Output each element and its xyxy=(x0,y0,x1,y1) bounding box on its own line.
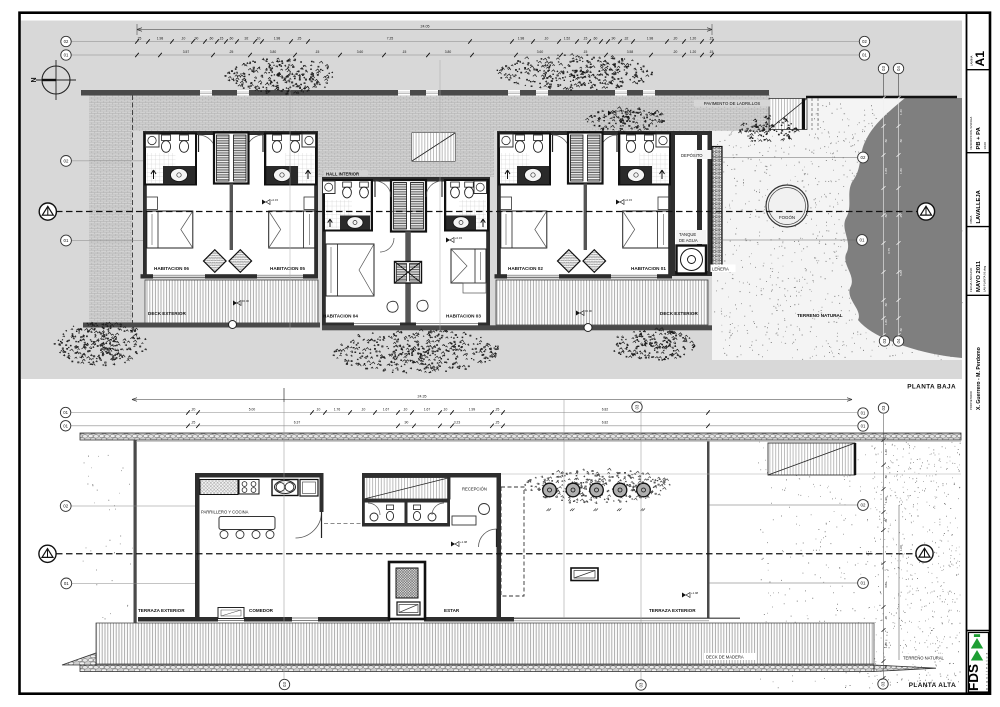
svg-text:.25: .25 xyxy=(191,421,196,425)
svg-text:1.76: 1.76 xyxy=(334,407,341,411)
svg-text:6.37: 6.37 xyxy=(294,421,301,425)
svg-text:1.80: 1.80 xyxy=(899,168,903,174)
svg-text:01: 01 xyxy=(862,53,867,58)
svg-text:FECHA / ARCHIVO: FECHA / ARCHIVO xyxy=(969,267,973,292)
svg-text:3.60: 3.60 xyxy=(357,50,364,54)
svg-text:.92: .92 xyxy=(244,36,249,40)
svg-text:TANQUE: TANQUE xyxy=(679,232,696,237)
svg-text:RECEPCIÓN: RECEPCIÓN xyxy=(462,487,487,492)
svg-text:DESCRIPCION / ESCALA: DESCRIPCION / ESCALA xyxy=(969,117,973,150)
svg-text:02: 02 xyxy=(64,158,69,163)
svg-text:24.05: 24.05 xyxy=(421,25,430,29)
svg-text:.60: .60 xyxy=(229,36,234,40)
svg-text:.50: .50 xyxy=(884,139,888,144)
svg-text:.25: .25 xyxy=(137,36,142,40)
svg-text:1.67: 1.67 xyxy=(383,407,390,411)
svg-text:1.99: 1.99 xyxy=(469,407,476,411)
svg-text:HABITACION 01: HABITACION 01 xyxy=(631,266,666,271)
svg-text:04: 04 xyxy=(896,338,901,343)
svg-text:PROPIETARIO: PROPIETARIO xyxy=(969,390,973,410)
svg-text:.10: .10 xyxy=(403,407,408,411)
svg-text:DECK EXTERIOR: DECK EXTERIOR xyxy=(660,311,698,316)
svg-text:02: 02 xyxy=(64,39,69,44)
svg-text:03: 03 xyxy=(635,404,640,409)
svg-text:.90: .90 xyxy=(611,36,616,40)
svg-text:.15: .15 xyxy=(583,36,588,40)
svg-text:COMEDOR: COMEDOR xyxy=(249,608,274,613)
svg-text:1.40: 1.40 xyxy=(884,109,888,115)
svg-text:1.98: 1.98 xyxy=(274,36,281,40)
svg-text:1.98: 1.98 xyxy=(157,36,164,40)
svg-text:FOGÓN: FOGÓN xyxy=(779,215,795,220)
svg-text:TERREÑO NATURAL: TERREÑO NATURAL xyxy=(903,656,945,661)
svg-text:±0.00: ±0.00 xyxy=(585,309,592,313)
svg-text:3.58: 3.58 xyxy=(627,50,634,54)
svg-text:PARRILLERO Y COCINA: PARRILLERO Y COCINA xyxy=(201,510,249,515)
svg-text:3.80: 3.80 xyxy=(270,50,277,54)
svg-text:3.57: 3.57 xyxy=(183,50,190,54)
svg-text:DECK EXTERIOR: DECK EXTERIOR xyxy=(148,311,186,316)
svg-text:03: 03 xyxy=(882,338,887,343)
svg-text:HABITACION 06: HABITACION 06 xyxy=(154,266,189,271)
svg-text:.60: .60 xyxy=(209,36,214,40)
svg-text:HALL INTERIOR: HALL INTERIOR xyxy=(326,172,360,177)
svg-text:.20: .20 xyxy=(191,407,196,411)
svg-text:6.82: 6.82 xyxy=(602,421,609,425)
svg-text:02: 02 xyxy=(862,39,867,44)
svg-text:.20: .20 xyxy=(884,616,888,621)
svg-text:1.80: 1.80 xyxy=(884,642,888,648)
svg-text:±0.00: ±0.00 xyxy=(242,299,249,303)
svg-text:01: 01 xyxy=(861,581,866,586)
svg-text:01: 01 xyxy=(64,238,69,243)
svg-text:OBRA: OBRA xyxy=(969,215,973,223)
svg-text:.60: .60 xyxy=(593,36,598,40)
svg-text:.32: .32 xyxy=(624,36,629,40)
svg-text:PLANTA ALTA: PLANTA ALTA xyxy=(909,682,956,689)
svg-text:TERRENO NATURAL: TERRENO NATURAL xyxy=(797,313,843,318)
svg-text:.15: .15 xyxy=(709,50,714,54)
svg-text:+1.98: +1.98 xyxy=(460,540,468,544)
svg-text:02: 02 xyxy=(63,504,68,509)
svg-text:+0.15: +0.15 xyxy=(625,198,633,202)
svg-text:HABITACION 05: HABITACION 05 xyxy=(270,266,305,271)
svg-text:TERRAZA EXTERIOR: TERRAZA EXTERIOR xyxy=(649,608,696,613)
svg-text:.90: .90 xyxy=(404,421,409,425)
svg-text:01: 01 xyxy=(861,411,866,416)
svg-text:5.00: 5.00 xyxy=(249,407,256,411)
svg-text:.10: .10 xyxy=(443,407,448,411)
svg-text:.15: .15 xyxy=(315,50,320,54)
svg-text:6.82: 6.82 xyxy=(602,407,609,411)
svg-text:.20: .20 xyxy=(673,50,678,54)
svg-text:HABITACION 03: HABITACION 03 xyxy=(446,314,481,319)
svg-text:1/100: 1/100 xyxy=(983,142,987,150)
svg-text:+1.98: +1.98 xyxy=(691,591,699,595)
svg-text:HABITACION 04: HABITACION 04 xyxy=(323,314,358,319)
svg-text:.50: .50 xyxy=(899,328,903,333)
svg-text:.15: .15 xyxy=(583,50,588,54)
svg-text:3.80: 3.80 xyxy=(884,582,888,588)
svg-text:.25: .25 xyxy=(495,407,500,411)
svg-text:03: 03 xyxy=(881,405,886,410)
svg-text:LAVALLEJA: LAVALLEJA xyxy=(976,189,982,223)
svg-text:DECK DE MADERA: DECK DE MADERA xyxy=(706,655,744,660)
svg-text:.20: .20 xyxy=(673,36,678,40)
svg-text:PB + PA: PB + PA xyxy=(976,126,982,149)
svg-text:01: 01 xyxy=(64,581,69,586)
svg-text:+0.15: +0.15 xyxy=(271,198,279,202)
svg-text:02: 02 xyxy=(861,503,866,508)
svg-text:3.60: 3.60 xyxy=(537,50,544,54)
svg-text:24.35: 24.35 xyxy=(418,394,427,398)
svg-text:1.80: 1.80 xyxy=(884,319,888,325)
svg-text:3.75: 3.75 xyxy=(887,248,891,254)
svg-text:DE AGUA: DE AGUA xyxy=(679,238,698,243)
svg-text:3.23: 3.23 xyxy=(454,421,461,425)
svg-text:FDS: FDS xyxy=(966,664,981,691)
svg-text:01: 01 xyxy=(63,423,68,428)
svg-text:.10: .10 xyxy=(361,407,366,411)
svg-text:03: 03 xyxy=(639,682,644,687)
svg-text:.15: .15 xyxy=(402,50,407,54)
svg-text:.25: .25 xyxy=(495,421,500,425)
svg-text:-: - xyxy=(983,229,987,230)
svg-text:.50: .50 xyxy=(899,139,903,144)
svg-text:04: 04 xyxy=(896,66,901,71)
svg-text:arquitectos: arquitectos xyxy=(985,651,989,690)
svg-text:PLANTA BAJA: PLANTA BAJA xyxy=(907,384,956,391)
svg-text:.25: .25 xyxy=(229,50,234,54)
svg-text:1.98: 1.98 xyxy=(518,36,525,40)
svg-text:1.20: 1.20 xyxy=(690,50,697,54)
svg-text:.35: .35 xyxy=(884,519,888,524)
svg-text:1.40: 1.40 xyxy=(884,449,888,455)
svg-text:01: 01 xyxy=(860,238,865,243)
svg-text:.50: .50 xyxy=(884,303,888,308)
svg-text:HABITACION 02: HABITACION 02 xyxy=(508,266,543,271)
svg-text:.25: .25 xyxy=(297,36,302,40)
svg-text:.10: .10 xyxy=(316,407,321,411)
svg-text:3.80: 3.80 xyxy=(445,50,452,54)
svg-text:A1: A1 xyxy=(973,51,987,67)
svg-text:1.67: 1.67 xyxy=(424,407,431,411)
svg-text:.15: .15 xyxy=(709,36,714,40)
svg-text:1.90: 1.90 xyxy=(884,497,888,503)
svg-text:PAVIMENTO DE LADRILLOS: PAVIMENTO DE LADRILLOS xyxy=(704,101,761,106)
svg-text:ESTAR: ESTAR xyxy=(444,608,460,613)
svg-text:.15: .15 xyxy=(219,36,224,40)
svg-text:+0.15: +0.15 xyxy=(455,236,463,240)
svg-text:01: 01 xyxy=(64,53,69,58)
svg-text:.50: .50 xyxy=(884,475,888,480)
svg-text:N: N xyxy=(31,77,38,82)
svg-text:02: 02 xyxy=(861,155,866,160)
svg-text:03: 03 xyxy=(881,66,886,71)
svg-text:1.40: 1.40 xyxy=(899,109,903,115)
svg-text:.50: .50 xyxy=(884,665,888,670)
svg-text:LAV-PLANTA 06.dwg: LAV-PLANTA 06.dwg xyxy=(983,265,987,292)
svg-text:.10: .10 xyxy=(181,36,186,40)
svg-text:TERRAZA EXTERIOR: TERRAZA EXTERIOR xyxy=(138,608,185,613)
svg-text:1.00: 1.00 xyxy=(899,545,903,551)
svg-text:.10: .10 xyxy=(544,36,549,40)
svg-text:03: 03 xyxy=(282,682,287,687)
svg-text:01: 01 xyxy=(63,410,68,415)
svg-text:1.52: 1.52 xyxy=(564,36,571,40)
svg-text:LEÑERA: LEÑERA xyxy=(712,267,729,272)
svg-text:DEPÓSITO: DEPÓSITO xyxy=(681,153,703,158)
svg-text:01: 01 xyxy=(861,424,866,429)
svg-text:1.98: 1.98 xyxy=(647,36,654,40)
svg-text:MAYO 2011: MAYO 2011 xyxy=(976,260,982,292)
svg-text:1.88: 1.88 xyxy=(884,168,888,174)
svg-text:X. Guerrero - M. Perdomo: X. Guerrero - M. Perdomo xyxy=(976,347,982,410)
svg-text:7.25: 7.25 xyxy=(387,36,394,40)
svg-text:1.20: 1.20 xyxy=(690,36,697,40)
svg-text:03: 03 xyxy=(881,681,886,686)
